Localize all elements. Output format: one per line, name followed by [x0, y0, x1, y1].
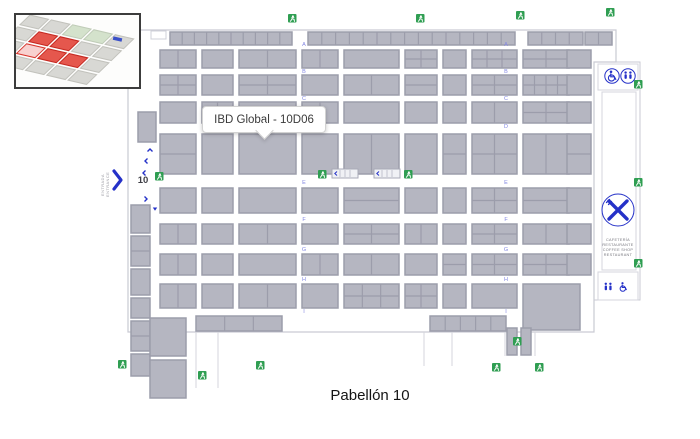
exit-sign-icon: [535, 363, 544, 372]
booth[interactable]: [160, 188, 196, 213]
booth[interactable]: [202, 254, 233, 275]
booth[interactable]: [202, 50, 233, 68]
exit-sign-icon: [256, 361, 265, 370]
entrance-label-en: ENTRANCE: [105, 172, 110, 197]
booth[interactable]: [202, 284, 233, 308]
booth[interactable]: [150, 318, 186, 356]
stairs-outline: [151, 31, 166, 39]
aisle-letter: D: [504, 124, 508, 130]
booth[interactable]: [202, 134, 233, 174]
booth[interactable]: [523, 284, 580, 330]
wc-person-icon: [605, 283, 607, 285]
aisle-letter: I: [303, 309, 305, 315]
exit-sign-icon: [318, 170, 327, 179]
wc-person-icon: [629, 71, 631, 73]
aisle-letter: F: [504, 217, 508, 223]
booth[interactable]: [308, 32, 515, 45]
exit-sign-icon: [404, 170, 413, 179]
booth[interactable]: [567, 50, 591, 68]
exit-sign-icon: [606, 8, 615, 17]
booth[interactable]: [160, 102, 196, 123]
annex-icons: CAFETERÍA RESTAURANTE COFFEE SHOP RESTAU…: [602, 69, 635, 291]
aisle-letter: A: [302, 42, 306, 48]
escalator-icon: [374, 169, 400, 178]
booth[interactable]: [567, 254, 591, 275]
booth[interactable]: [196, 316, 282, 331]
booth[interactable]: [567, 102, 591, 123]
wc-person-icon: [624, 71, 626, 73]
booth[interactable]: [150, 360, 186, 398]
booth[interactable]: [202, 75, 233, 95]
booth[interactable]: [443, 224, 466, 244]
hall-title: Pabellón 10: [250, 387, 490, 404]
escalator-icon: [332, 169, 358, 178]
aisle-letter: H: [504, 277, 508, 283]
wc-person-icon: [609, 283, 611, 285]
lobby-corridor-lines: [196, 332, 535, 388]
exit-sign-icon: [634, 259, 643, 268]
booth[interactable]: [131, 298, 150, 318]
cafeteria-label: COFFEE SHOP: [603, 248, 634, 252]
exit-sign-icon: [516, 11, 525, 20]
booth[interactable]: [302, 188, 338, 213]
booth[interactable]: [443, 50, 466, 68]
wc-person-body: [625, 74, 627, 79]
booth[interactable]: [202, 224, 233, 244]
aisle-letter: E: [504, 180, 508, 186]
aisle-letter: A: [504, 42, 508, 48]
exit-sign-icon: [198, 371, 207, 380]
booth[interactable]: [131, 269, 150, 295]
booth-layer: [131, 32, 612, 398]
booth[interactable]: [302, 284, 338, 308]
booth[interactable]: [443, 284, 466, 308]
exit-sign-icon: [288, 14, 297, 23]
booth[interactable]: [472, 284, 517, 308]
exit-sign-icon: [155, 172, 164, 181]
booth[interactable]: [405, 134, 437, 174]
booth[interactable]: [344, 102, 399, 123]
booth[interactable]: [302, 75, 338, 95]
annex-wc-box: [598, 272, 638, 300]
booth[interactable]: [430, 316, 506, 331]
aisle-letter: E: [302, 180, 306, 186]
overview-inset[interactable]: [14, 13, 141, 89]
booth[interactable]: [131, 205, 150, 233]
booth[interactable]: [138, 112, 156, 142]
exit-sign-icon: [118, 360, 127, 369]
aisle-letter: H: [302, 277, 306, 283]
aisle-letter: I: [505, 309, 507, 315]
chevron-up-icon: [148, 149, 153, 152]
booth[interactable]: [567, 188, 591, 213]
booth[interactable]: [239, 188, 296, 213]
aisle-letter: G: [504, 247, 508, 253]
booth[interactable]: [202, 188, 233, 213]
exit-sign-icon: [513, 337, 522, 346]
booth[interactable]: [521, 328, 531, 355]
wheelchair-icon: [610, 71, 613, 74]
booth[interactable]: [567, 75, 591, 95]
booth[interactable]: [131, 354, 150, 376]
booth[interactable]: [405, 188, 437, 213]
wc-person-body: [605, 286, 607, 291]
booth[interactable]: [344, 50, 399, 68]
wc-circle: [621, 69, 635, 83]
wheelchair-wheel: [620, 286, 625, 291]
aisle-letter: F: [302, 217, 306, 223]
chevron-right-icon: [145, 197, 148, 202]
exit-sign-icon: [416, 14, 425, 23]
booth[interactable]: [405, 254, 437, 275]
booth[interactable]: [239, 134, 296, 174]
triangle-down-icon: [153, 208, 157, 211]
booth[interactable]: [443, 75, 466, 95]
booth[interactable]: [405, 102, 437, 123]
exit-sign-icon: [634, 80, 643, 89]
booth[interactable]: [443, 102, 466, 123]
aisle-letter: C: [504, 96, 508, 102]
overview-inset-svg: [16, 15, 139, 87]
aisle-letter: C: [302, 96, 306, 102]
wheelchair-icon: [621, 282, 623, 284]
cafeteria-label: CAFETERÍA: [606, 238, 630, 242]
aisle-letter: B: [302, 69, 306, 75]
entrance-hall-number: 10: [138, 175, 149, 186]
booth[interactable]: [239, 254, 296, 275]
aisle-letter: B: [504, 69, 508, 75]
chevron-left-icon: [145, 159, 148, 164]
wc-person-body: [609, 286, 611, 291]
booth[interactable]: [302, 224, 338, 244]
entrance-arrow-icon[interactable]: [114, 171, 121, 189]
annex-outline: [594, 62, 640, 300]
cafeteria-label: RESTAURANTE: [602, 243, 633, 247]
cafeteria-label: RESTAURANT: [604, 253, 633, 257]
exit-sign-icon: [492, 363, 501, 372]
booth[interactable]: [302, 134, 338, 174]
booth[interactable]: [567, 224, 591, 244]
wc-person-body: [629, 74, 631, 79]
booth[interactable]: [443, 188, 466, 213]
exit-sign-icon: [634, 178, 643, 187]
aisle-letter: G: [302, 247, 306, 253]
